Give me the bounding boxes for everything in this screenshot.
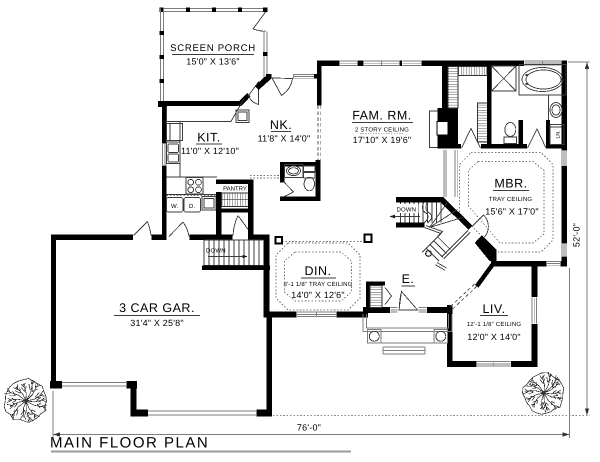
svg-text:FAM. RM.: FAM. RM. [352,109,412,123]
svg-text:11'0" X 12'10": 11'0" X 12'10" [181,146,239,156]
svg-text:D.: D. [189,203,196,210]
svg-text:W.: W. [171,203,179,210]
svg-text:MBR.: MBR. [494,177,527,191]
svg-text:76'-0": 76'-0" [297,423,321,433]
svg-text:LN.: LN. [556,130,562,138]
svg-text:NK.: NK. [270,118,292,132]
svg-text:52'-0": 52'-0" [572,223,582,247]
svg-text:12'-1 1/8" CEILING: 12'-1 1/8" CEILING [467,321,522,328]
svg-text:3 CAR GAR.: 3 CAR GAR. [119,301,195,315]
svg-text:TRAY CEILING: TRAY CEILING [489,196,533,203]
svg-text:8'-1 1/8" TRAY CEILING: 8'-1 1/8" TRAY CEILING [283,281,352,288]
svg-text:31'4" X 25'8": 31'4" X 25'8" [130,318,183,328]
svg-text:15'6" X 17'0": 15'6" X 17'0" [485,207,538,217]
svg-text:KIT.: KIT. [197,131,221,145]
svg-text:DIN.: DIN. [305,264,332,278]
svg-text:SCREEN PORCH: SCREEN PORCH [170,43,256,54]
svg-text:17'10" X 19'6": 17'10" X 19'6" [353,135,412,145]
svg-text:2 STORY CEILING: 2 STORY CEILING [355,127,409,134]
svg-text:LIV.: LIV. [482,302,505,316]
svg-text:PANTRY: PANTRY [223,186,247,193]
svg-text:14'0" X 12'6": 14'0" X 12'6" [291,290,344,300]
svg-text:11'8" X 14'0": 11'8" X 14'0" [258,134,311,144]
svg-text:MAIN FLOOR PLAN: MAIN FLOOR PLAN [50,435,209,452]
svg-text:15'0" X 13'6": 15'0" X 13'6" [186,57,239,67]
svg-text:12'0" X 14'0": 12'0" X 14'0" [467,332,520,342]
svg-text:DOWN: DOWN [206,248,226,255]
svg-text:DOWN: DOWN [397,207,417,214]
svg-text:E.: E. [402,272,415,286]
